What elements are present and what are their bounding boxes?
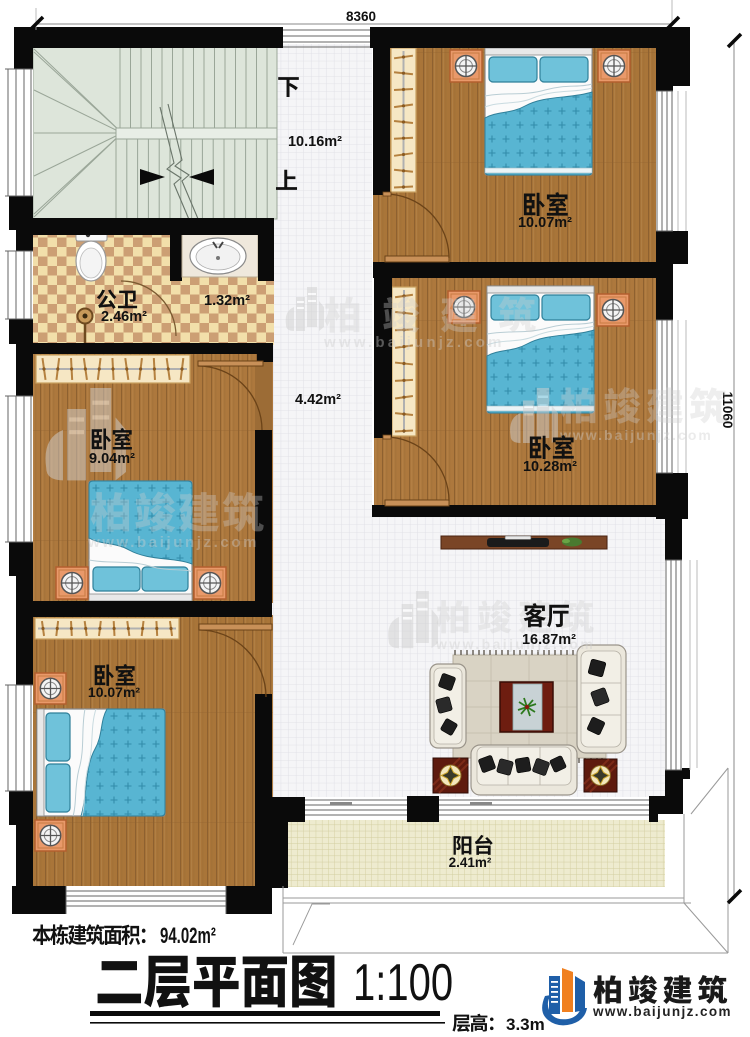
svg-text:www.baijunjz.com: www.baijunjz.com [323,334,505,351]
svg-text:3.3m: 3.3m [506,1015,545,1034]
svg-text:94.02m²: 94.02m² [160,924,216,949]
svg-text:1.32m²: 1.32m² [204,293,250,309]
svg-text:1:100: 1:100 [353,953,453,1011]
svg-text:16.87m²: 16.87m² [522,632,576,648]
svg-text:2.41m²: 2.41m² [449,855,492,870]
svg-text:9.04m²: 9.04m² [89,451,135,467]
svg-text:2.46m²: 2.46m² [101,309,147,325]
svg-text:4.42m²: 4.42m² [295,392,341,408]
svg-text:10.28m²: 10.28m² [523,459,577,475]
svg-text:10.07m²: 10.07m² [88,684,140,700]
svg-text:www.baijunjz.com: www.baijunjz.com [592,1004,732,1019]
svg-text:www.baijunjz.com: www.baijunjz.com [559,427,713,443]
svg-text:www.baijunjz.com: www.baijunjz.com [87,534,259,551]
svg-text:10.07m²: 10.07m² [518,215,572,231]
svg-text:10.16m²: 10.16m² [288,134,342,150]
svg-text:8360: 8360 [346,9,376,24]
